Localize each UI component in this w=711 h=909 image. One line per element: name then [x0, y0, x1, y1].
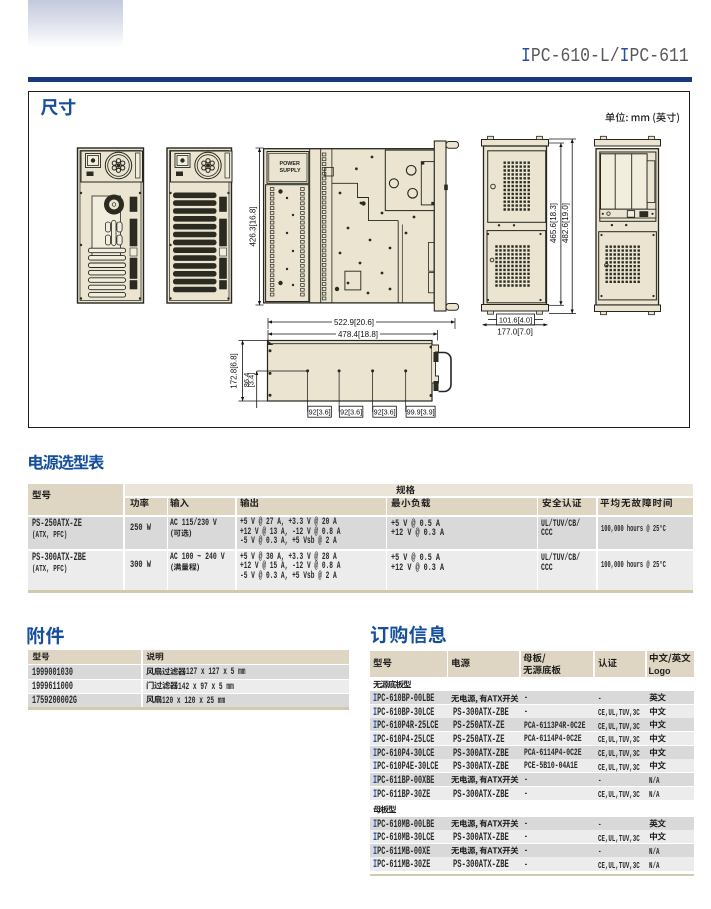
svg-text:92[3.6]: 92[3.6]	[340, 408, 362, 417]
svg-text:92[3.6]: 92[3.6]	[308, 408, 330, 417]
svg-text:99.9[3.9]: 99.9[3.9]	[406, 408, 434, 417]
svg-text:92[3.6]: 92[3.6]	[373, 408, 395, 417]
